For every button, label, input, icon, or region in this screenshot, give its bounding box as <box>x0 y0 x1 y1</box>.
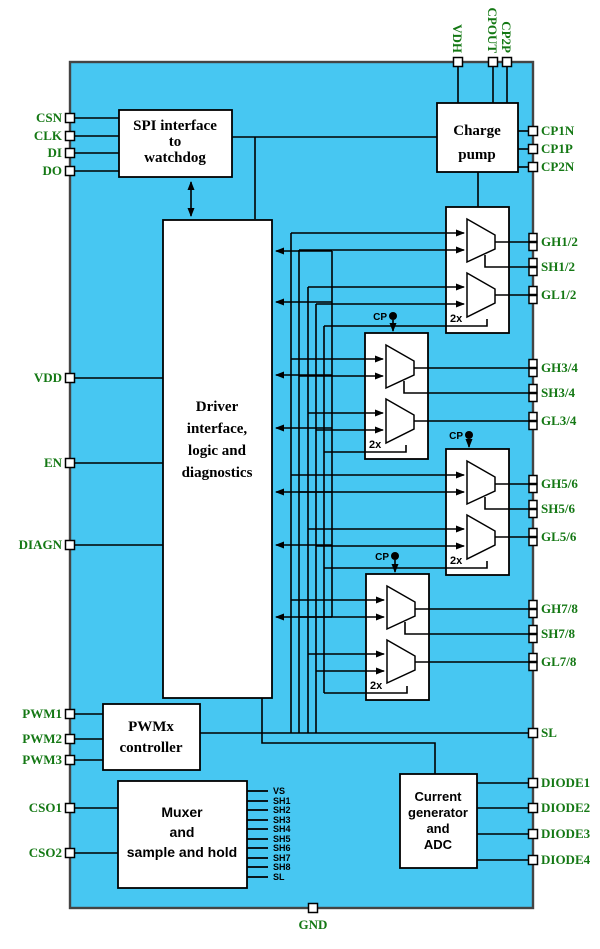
pin-vdd: VDD <box>34 370 75 385</box>
muxer-output-labels: VS SH1 SH2 SH3 SH4 SH5 SH6 SH7 SH8 SL <box>273 786 291 882</box>
pin-diagn: DIAGN <box>19 537 75 552</box>
pin-csn: CSN <box>36 110 75 125</box>
svg-text:and: and <box>170 824 195 840</box>
pin-gh34: GH3/4 <box>529 360 578 377</box>
svg-text:watchdog: watchdog <box>144 150 206 166</box>
svg-text:SH7/8: SH7/8 <box>541 626 575 641</box>
cp-label: CP <box>373 312 387 323</box>
pin-cp2n: CP2N <box>529 159 575 174</box>
pin-gh12: GH1/2 <box>529 234 578 251</box>
pin-clk: CLK <box>34 128 75 143</box>
svg-text:ADC: ADC <box>424 837 453 852</box>
svg-text:CP2P: CP2P <box>499 21 514 53</box>
pin-diode2: DIODE2 <box>529 800 591 815</box>
svg-text:GH1/2: GH1/2 <box>541 234 578 249</box>
svg-text:Muxer: Muxer <box>161 804 203 820</box>
svg-text:Charge: Charge <box>453 123 501 139</box>
pin-sh12: SH1/2 <box>529 259 575 276</box>
svg-text:GL3/4: GL3/4 <box>541 413 577 428</box>
svg-text:to: to <box>169 134 182 150</box>
pin-gh78: GH7/8 <box>529 601 578 618</box>
svg-text:GND: GND <box>299 917 328 932</box>
svg-text:Driver: Driver <box>196 399 239 415</box>
pin-diode3: DIODE3 <box>529 826 591 841</box>
svg-text:Current: Current <box>415 789 463 804</box>
block-diagram: 2x CP 2x CP 2x <box>0 0 600 949</box>
svg-text:CP1P: CP1P <box>541 141 573 156</box>
svg-text:SL: SL <box>273 872 285 882</box>
pin-pwm2: PWM2 <box>22 731 74 746</box>
svg-text:CSO2: CSO2 <box>29 845 62 860</box>
pin-sh56: SH5/6 <box>529 501 575 518</box>
multiplier-label: 2x <box>370 680 383 692</box>
cp-label: CP <box>375 552 389 563</box>
svg-text:PWM1: PWM1 <box>22 706 62 721</box>
driver-logic-block: Driver interface, logic and diagnostics <box>163 220 272 698</box>
svg-text:SH5/6: SH5/6 <box>541 501 575 516</box>
diagram-canvas: 2x CP 2x CP 2x <box>0 0 600 949</box>
svg-text:logic and: logic and <box>188 443 247 459</box>
svg-text:controller: controller <box>119 740 182 756</box>
svg-text:PWM2: PWM2 <box>22 731 62 746</box>
svg-text:DIODE4: DIODE4 <box>541 852 591 867</box>
multiplier-label: 2x <box>369 439 382 451</box>
svg-text:pump: pump <box>458 147 496 163</box>
pin-gh56: GH5/6 <box>529 476 578 493</box>
spi-block: SPI interface to watchdog <box>119 110 232 177</box>
svg-text:VDH: VDH <box>450 24 465 53</box>
cp-label: CP <box>449 431 463 442</box>
svg-text:SH1/2: SH1/2 <box>541 259 575 274</box>
muxer-block: Muxer and sample and hold <box>118 781 247 888</box>
svg-text:DO: DO <box>43 163 63 178</box>
pin-cso1: CSO1 <box>29 800 75 815</box>
svg-text:PWMx: PWMx <box>128 719 174 735</box>
pin-cp2p: CP2P <box>499 21 514 66</box>
pin-gl34: GL3/4 <box>529 413 577 430</box>
svg-text:CSO1: CSO1 <box>29 800 62 815</box>
svg-text:CPOUT: CPOUT <box>485 8 500 54</box>
svg-text:sample and hold: sample and hold <box>127 844 237 860</box>
svg-text:GL5/6: GL5/6 <box>541 529 577 544</box>
pin-cp1n: CP1N <box>529 123 575 138</box>
svg-text:GL7/8: GL7/8 <box>541 654 577 669</box>
svg-text:GL1/2: GL1/2 <box>541 287 576 302</box>
svg-text:DIODE1: DIODE1 <box>541 775 590 790</box>
svg-text:SL: SL <box>541 725 557 740</box>
pin-diode4: DIODE4 <box>529 852 591 867</box>
svg-text:DIODE3: DIODE3 <box>541 826 591 841</box>
pin-pwm3: PWM3 <box>22 752 74 767</box>
pin-sh78: SH7/8 <box>529 626 575 643</box>
pin-cso2: CSO2 <box>29 845 75 860</box>
svg-text:GH7/8: GH7/8 <box>541 601 578 616</box>
cp-junction-dot <box>391 552 399 560</box>
svg-text:SH2: SH2 <box>273 805 291 815</box>
svg-text:CP2N: CP2N <box>541 159 575 174</box>
pin-vdh: VDH <box>450 24 465 66</box>
current-adc-block: Current generator and ADC <box>400 774 477 868</box>
svg-text:SH3/4: SH3/4 <box>541 385 575 400</box>
svg-text:SH4: SH4 <box>273 824 291 834</box>
svg-text:GH3/4: GH3/4 <box>541 360 578 375</box>
svg-text:and: and <box>426 821 449 836</box>
svg-text:CLK: CLK <box>34 128 63 143</box>
svg-text:SH6: SH6 <box>273 843 291 853</box>
svg-text:interface,: interface, <box>187 421 248 437</box>
svg-text:diagnostics: diagnostics <box>182 465 253 481</box>
svg-text:DIAGN: DIAGN <box>19 537 63 552</box>
svg-text:VS: VS <box>273 786 285 796</box>
pin-gl78: GL7/8 <box>529 654 577 671</box>
multiplier-label: 2x <box>450 313 463 325</box>
svg-text:SPI interface: SPI interface <box>133 118 217 134</box>
svg-text:VDD: VDD <box>34 370 62 385</box>
cp-junction-dot <box>465 431 473 439</box>
svg-text:DI: DI <box>48 145 62 160</box>
svg-text:CSN: CSN <box>36 110 63 125</box>
pin-pwm1: PWM1 <box>22 706 74 721</box>
svg-text:CP1N: CP1N <box>541 123 575 138</box>
pwm-controller-block: PWMx controller <box>103 704 200 770</box>
svg-text:EN: EN <box>44 455 63 470</box>
multiplier-label: 2x <box>450 555 463 567</box>
svg-text:PWM3: PWM3 <box>22 752 62 767</box>
svg-text:generator: generator <box>408 805 468 820</box>
pin-cpout: CPOUT <box>485 8 500 67</box>
svg-text:GH5/6: GH5/6 <box>541 476 578 491</box>
cp-junction-dot <box>389 312 397 320</box>
pin-cp1p: CP1P <box>529 141 573 156</box>
pin-gl12: GL1/2 <box>529 287 576 304</box>
pin-sh34: SH3/4 <box>529 385 575 402</box>
svg-text:SH8: SH8 <box>273 862 291 872</box>
charge-pump-block: Charge pump <box>437 103 518 172</box>
svg-text:DIODE2: DIODE2 <box>541 800 590 815</box>
pin-diode1: DIODE1 <box>529 775 591 790</box>
pin-gl56: GL5/6 <box>529 529 577 546</box>
